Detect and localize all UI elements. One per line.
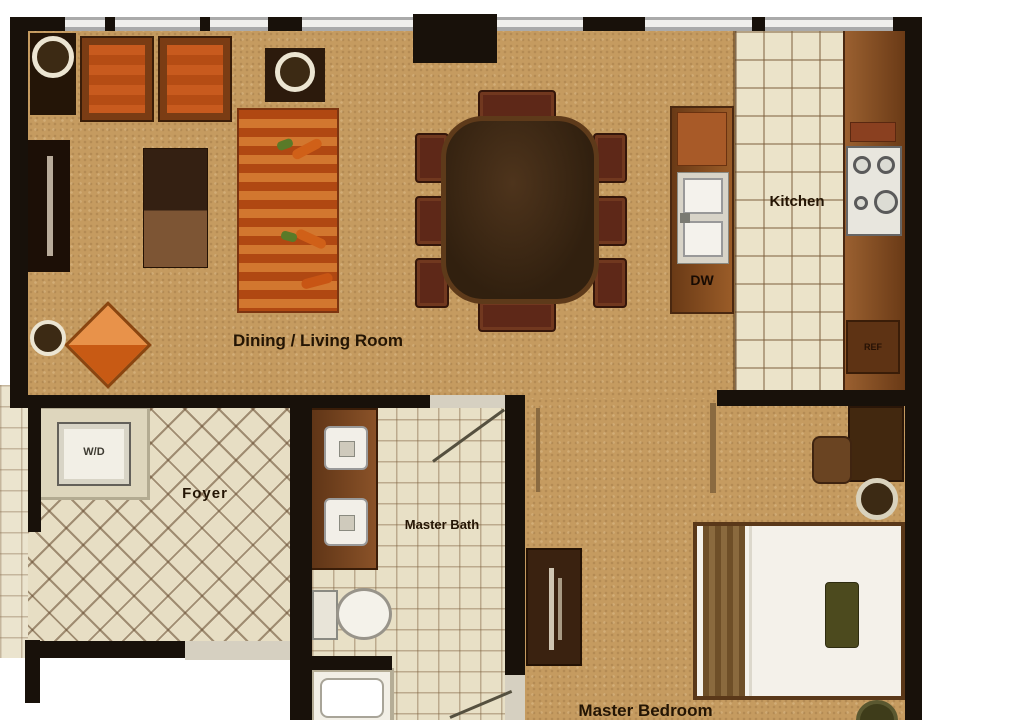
exterior-tile-strip: [0, 385, 28, 658]
master-bath-room-label: Master Bath: [400, 516, 484, 534]
dining-table: [441, 116, 599, 304]
dresser: [526, 548, 582, 666]
wall-top-5: [583, 17, 645, 31]
burner-icon: [877, 156, 895, 174]
rug-vegetable-motif: [283, 270, 339, 292]
wall-top-stub: [413, 14, 497, 63]
burner-icon: [853, 156, 871, 174]
bathtub-basin: [320, 678, 384, 718]
refrigerator-label: REF: [848, 342, 898, 352]
wall-left: [10, 17, 28, 398]
wall-top-3: [200, 17, 210, 31]
wall-tub-partition: [312, 656, 392, 670]
bath-bedroom-door-opening: [505, 675, 525, 720]
island-sink: [677, 172, 729, 264]
wall-foyer-left: [28, 408, 41, 532]
dining-living-room-label: Dining / Living Room: [178, 331, 458, 351]
wall-mid-horizontal: [10, 395, 430, 408]
master-bedroom-room-label: Master Bedroom: [528, 701, 763, 720]
floor-plan: DW REF Kitchen W/D Foyer Master Bath: [0, 0, 1024, 720]
console-handle: [47, 156, 53, 256]
wall-top-4: [268, 17, 302, 31]
dresser-handle: [558, 578, 562, 640]
toilet-tank: [312, 590, 338, 640]
armchair: [158, 36, 232, 122]
washer-dryer: W/D: [57, 422, 131, 486]
bath-door-leaf: [536, 408, 540, 492]
armchair-cushion: [167, 45, 223, 113]
bathroom-sink: [324, 498, 368, 546]
wall-foyer-bottom: [40, 641, 185, 658]
bedroom-door-leaf: [710, 403, 716, 493]
bathtub: [310, 668, 394, 720]
cutting-board: [677, 112, 727, 166]
wall-right: [905, 17, 922, 720]
toilet-bowl: [336, 588, 392, 640]
area-rug: [237, 108, 339, 313]
faucet-icon: [680, 213, 690, 223]
armchair-cushion: [89, 45, 145, 113]
washer-dryer-closet: W/D: [38, 406, 150, 500]
sink-basin: [683, 221, 723, 257]
countertop-item: [850, 122, 896, 142]
plant-icon: [30, 320, 66, 356]
dishwasher-label: DW: [672, 272, 732, 288]
rug-vegetable-motif: [269, 138, 329, 160]
rug-vegetable-motif: [273, 228, 333, 250]
stove: [846, 146, 902, 236]
plant-icon: [275, 52, 315, 92]
wall-top-2: [105, 17, 115, 31]
wall-entry-stub: [25, 640, 40, 703]
desk-chair: [812, 436, 852, 484]
console-table: [28, 140, 70, 272]
bed-sheet-fold: [749, 526, 752, 696]
burner-icon: [874, 190, 898, 214]
washer-dryer-label: W/D: [59, 446, 129, 458]
bathroom-sink: [324, 426, 368, 470]
dining-chair: [478, 300, 556, 332]
entry-door-opening: [185, 641, 290, 660]
wall-foyer-bath: [290, 398, 312, 720]
bath-door-opening: [430, 395, 505, 408]
armchair: [80, 36, 154, 122]
coffee-table: [143, 148, 208, 268]
plant-icon: [856, 478, 898, 520]
desk: [848, 406, 904, 482]
plant-icon: [32, 36, 74, 78]
foyer-room-label: Foyer: [150, 485, 260, 502]
bed: [693, 522, 905, 700]
wall-top-6: [752, 17, 765, 31]
dresser-handle: [549, 568, 554, 650]
pillow: [825, 582, 859, 648]
sink-drain-icon: [339, 441, 355, 457]
wall-kitchen-bedroom: [717, 390, 922, 406]
refrigerator: REF: [846, 320, 900, 374]
wall-bath-bedroom: [505, 395, 525, 675]
headboard: [703, 526, 745, 696]
kitchen-room-label: Kitchen: [737, 193, 857, 210]
wall-top-1: [28, 17, 65, 31]
sink-drain-icon: [339, 515, 355, 531]
sink-basin: [683, 178, 723, 214]
